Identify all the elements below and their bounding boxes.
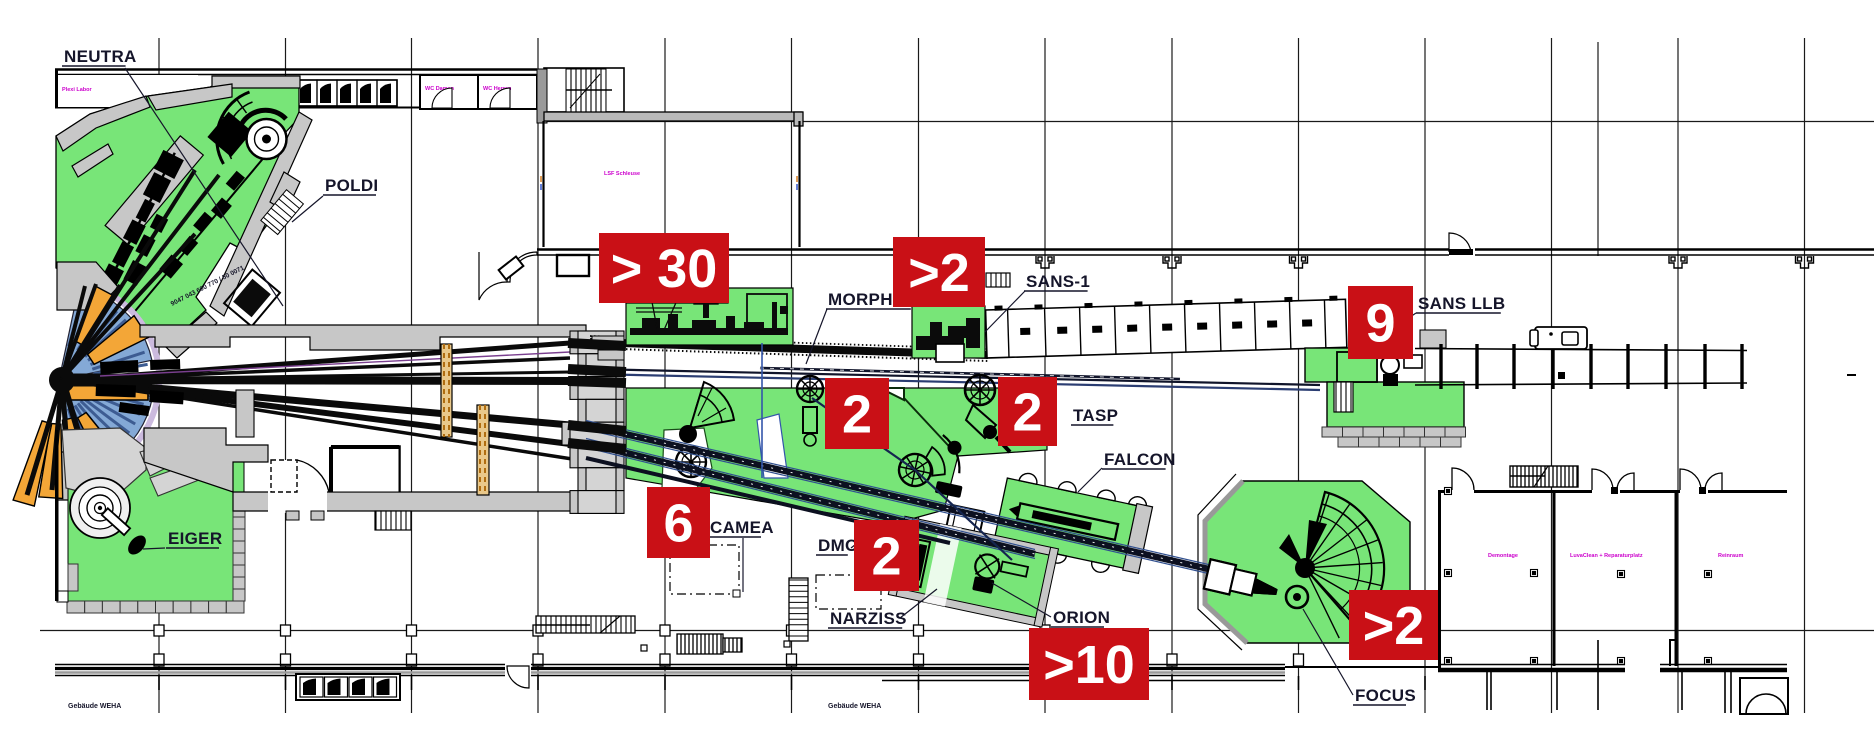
svg-text:FOCUS: FOCUS [1355, 686, 1416, 705]
svg-text:6: 6 [663, 494, 693, 554]
svg-text:NARZISS: NARZISS [830, 609, 907, 628]
svg-text:>2: >2 [908, 243, 970, 303]
svg-text:> 30: > 30 [611, 239, 718, 299]
svg-text:EIGER: EIGER [168, 529, 222, 548]
svg-text:POLDI: POLDI [325, 176, 378, 195]
svg-text:ORION: ORION [1053, 608, 1110, 627]
svg-text:LSF Schleuse: LSF Schleuse [604, 171, 640, 177]
svg-text:2: 2 [871, 527, 901, 587]
svg-text:DMC: DMC [818, 536, 858, 555]
svg-text:Gebäude WEHA: Gebäude WEHA [828, 703, 881, 710]
svg-text:CAMEA: CAMEA [710, 518, 774, 537]
svg-text:SANS LLB: SANS LLB [1418, 294, 1505, 313]
svg-text:Plexi Labor: Plexi Labor [62, 87, 93, 93]
svg-text:2: 2 [1012, 383, 1042, 443]
svg-text:TASP: TASP [1073, 406, 1118, 425]
svg-text:>2: >2 [1363, 596, 1425, 656]
svg-text:SANS-1: SANS-1 [1026, 272, 1090, 291]
svg-text:NEUTRA: NEUTRA [64, 47, 137, 66]
svg-text:LuvaClean + Reparaturplatz: LuvaClean + Reparaturplatz [1570, 553, 1643, 559]
svg-text:2: 2 [842, 385, 872, 445]
svg-text:Reinraum: Reinraum [1718, 553, 1743, 559]
svg-text:FALCON: FALCON [1104, 450, 1176, 469]
svg-text:Gebäude WEHA: Gebäude WEHA [68, 703, 121, 710]
svg-text:Demontage: Demontage [1488, 553, 1518, 559]
svg-text:9: 9 [1365, 294, 1395, 354]
svg-text:>10: >10 [1043, 635, 1135, 695]
